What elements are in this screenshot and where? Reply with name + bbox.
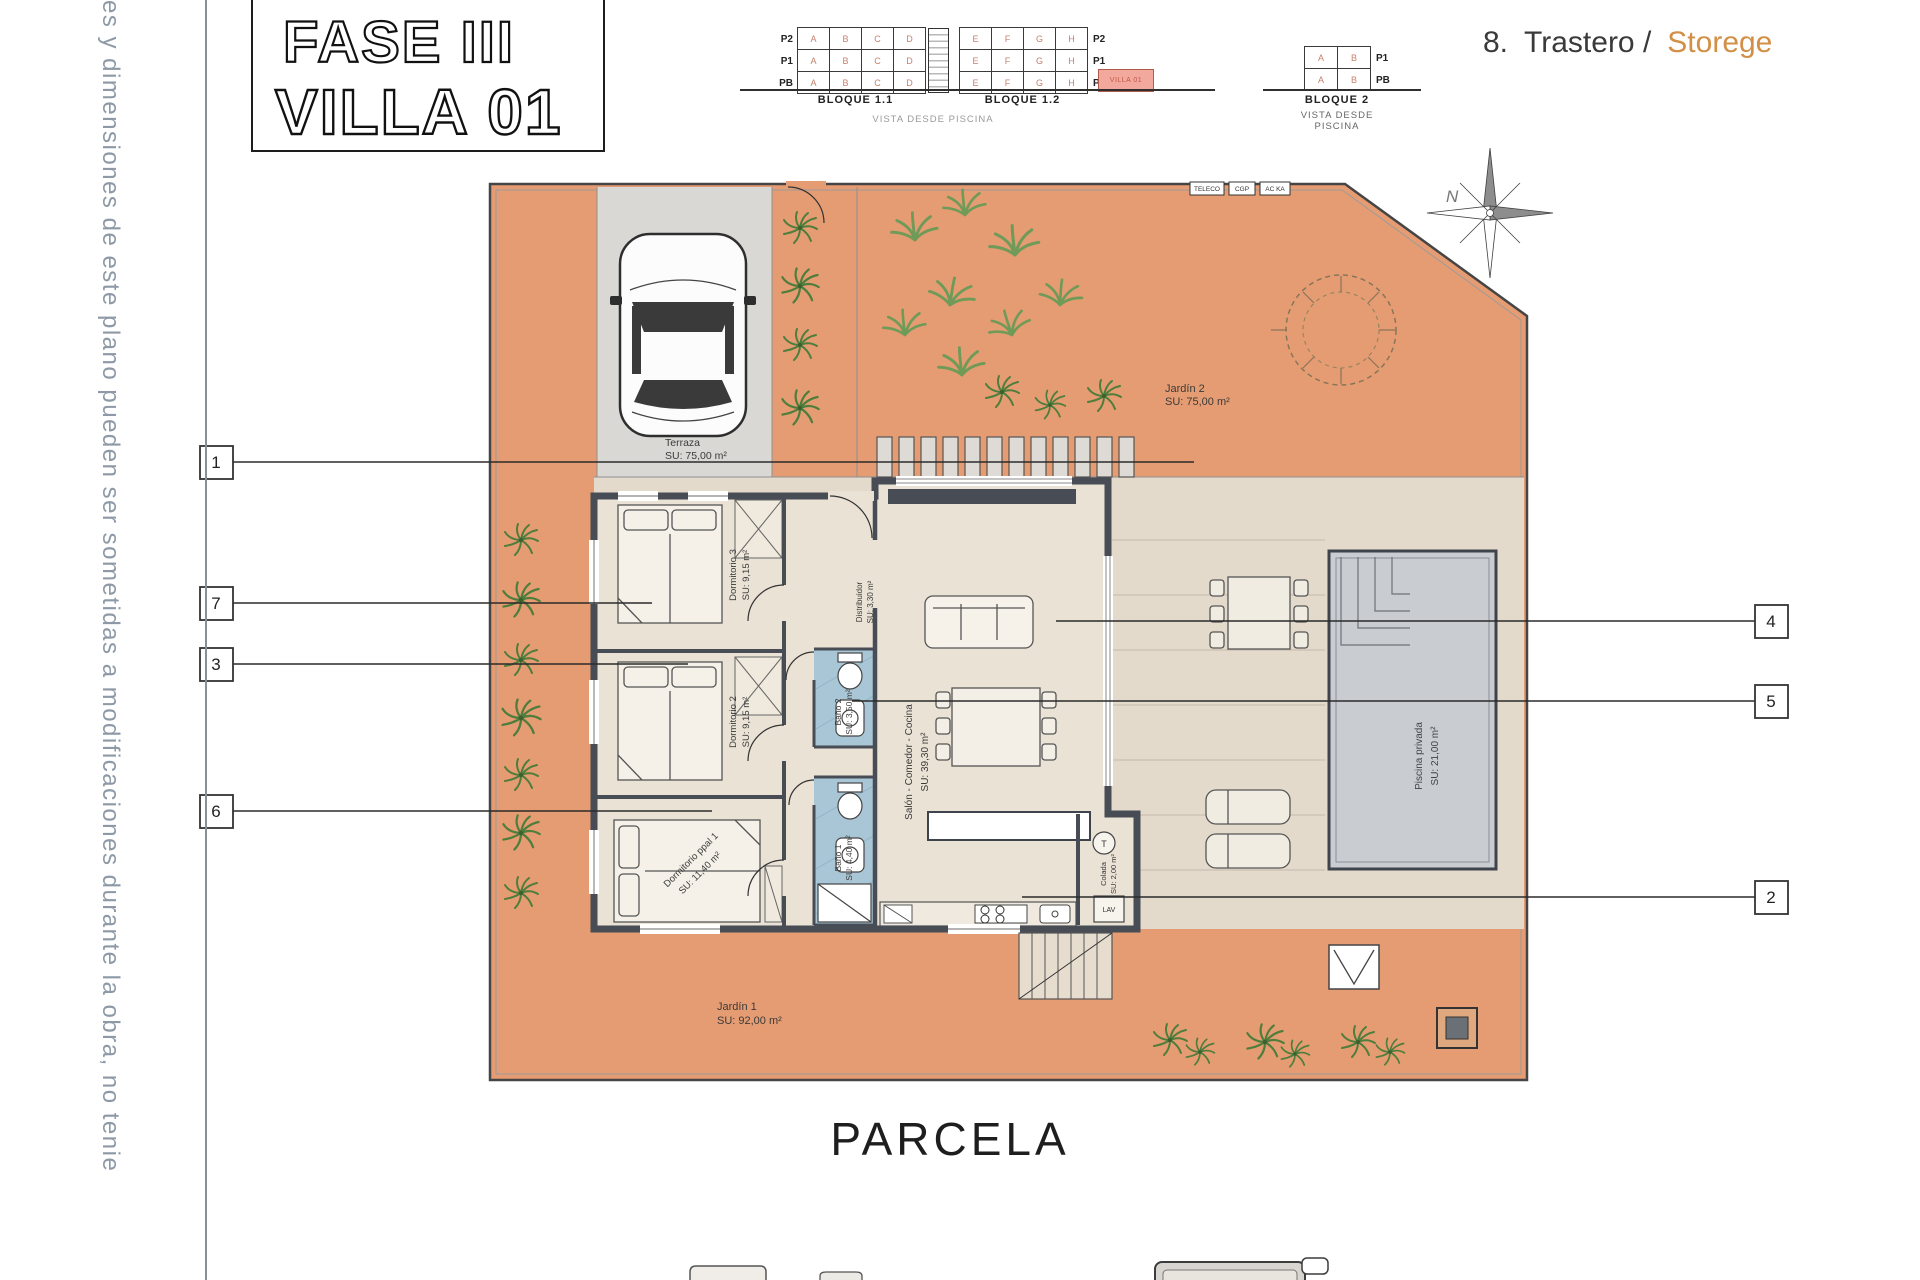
water-heater-label: T [1101, 839, 1107, 849]
colada-area: SU: 2,00 m² [1109, 853, 1118, 894]
callout-2: 2 [1766, 888, 1775, 907]
unit-cell: A [797, 27, 830, 50]
dorm3-label: Dormitorio 3 [728, 549, 739, 601]
floor-row-label: P2 [1088, 28, 1118, 50]
unit-cell: H [1055, 27, 1088, 50]
unit-cell: C [861, 49, 894, 72]
salon-label: Salón - Comedor - Cocina [904, 704, 915, 820]
media-unit [888, 489, 1076, 504]
unit-cell: A [797, 49, 830, 72]
meter-box-label-1: TELECO [1194, 186, 1220, 193]
unit-cell: B [829, 27, 862, 50]
utility-box-garden [1437, 1008, 1477, 1048]
bed-dorm2 [618, 662, 722, 780]
unit-cell: A [1304, 46, 1338, 69]
unit-cell: G [1023, 27, 1056, 50]
colada-label: Colada [1099, 861, 1108, 886]
unit-cell: C [861, 27, 894, 50]
kitchen-counter [880, 902, 1076, 926]
unit-cell: D [893, 27, 926, 50]
parcela-title: PARCELA [830, 1113, 1069, 1165]
dorm2-label: Dormitorio 2 [728, 696, 739, 748]
unit-cell: D [893, 49, 926, 72]
unit-cell: H [1055, 49, 1088, 72]
margin-disclaimer-text: es y dimensiones de este plano pueden se… [94, 0, 124, 1280]
unit-cell: G [1023, 49, 1056, 72]
legend-item-8: 8. Trastero / Storege [1483, 26, 1772, 60]
bano1-label: Baño 1 [833, 844, 843, 871]
phase-title: FASE III [283, 10, 515, 75]
legend-name-es: Trastero / [1524, 26, 1651, 60]
sheet-border-line [205, 0, 207, 1280]
salon-area: SU: 39,30 m² [920, 732, 931, 792]
diagram-baseline-1 [740, 89, 1215, 91]
jardin1-label: Jardín 1 [717, 1001, 757, 1013]
bano1-area: SU: 4,40 m² [844, 835, 854, 881]
legend-name-en: Storege [1667, 26, 1772, 60]
unit-cell: A [1304, 68, 1338, 91]
meter-box-label-2: CGP [1235, 186, 1249, 193]
floor-row-label: PB [1371, 69, 1401, 91]
jardin1-area: SU: 92,00 m² [717, 1015, 782, 1027]
pool-area-label: SU: 21,00 m² [1430, 726, 1441, 786]
unit-cell: E [959, 49, 992, 72]
unit-cell: E [959, 27, 992, 50]
callout-3: 3 [211, 655, 220, 674]
floor-row-label: P1 [1371, 47, 1401, 69]
unit-cell: B [1337, 68, 1371, 91]
title-block: FASE III VILLA 01 [251, 0, 605, 152]
legend-number: 8. [1483, 26, 1508, 60]
bloque-2-label: BLOQUE 2 [1287, 94, 1387, 106]
dining-table [936, 688, 1056, 766]
diagram-baseline-2 [1263, 89, 1421, 91]
unit-cell: B [1337, 46, 1371, 69]
bed-dorm3 [618, 505, 722, 623]
callout-5: 5 [1766, 692, 1775, 711]
callout-4: 4 [1766, 612, 1775, 631]
sofa [925, 596, 1033, 648]
car-top-view [610, 234, 756, 436]
floor-plan: Piscina privada SU: 21,00 m² [0, 0, 1920, 1280]
bloque-1-1-grid: P2ABCDP1ABCDPBABCD [768, 28, 926, 94]
pool: Piscina privada SU: 21,00 m² [1329, 551, 1496, 869]
bano2-area: SU: 3,50 m² [844, 689, 854, 735]
floor-row-label: P1 [768, 50, 798, 72]
callout-1: 1 [211, 453, 220, 472]
unit-cell: B [829, 49, 862, 72]
callout-6: 6 [211, 802, 220, 821]
floor-row-label: P2 [768, 28, 798, 50]
dorm3-area: SU: 9,15 m² [741, 550, 752, 601]
jardin2-area: SU: 75,00 m² [1165, 396, 1230, 408]
stair-core-box [928, 28, 949, 93]
stairs [1019, 933, 1112, 999]
callout-7: 7 [211, 594, 220, 613]
bloque-1-2-label: BLOQUE 1.2 [960, 94, 1085, 106]
unit-cell: F [991, 27, 1024, 50]
jardin2-label: Jardín 2 [1165, 383, 1205, 395]
pool-label: Piscina privada [1414, 722, 1425, 790]
unit-cell: F [991, 49, 1024, 72]
bloque-1-2-grid: EFGHP2EFGHP1EFGHPB [960, 28, 1118, 94]
bloque-1-1-label: BLOQUE 1.1 [793, 94, 918, 106]
distribuidor-area: SU: 3,30 m² [866, 580, 875, 623]
vista-caption-1: VISTA DESDE PISCINA [853, 114, 1013, 125]
house: T LAV [589, 476, 1137, 934]
distribuidor-label: Distribuidor [855, 581, 864, 622]
bloque-2-grid: ABP1ABPB [1305, 47, 1401, 91]
kitchen-island [928, 812, 1090, 840]
terraza-area: SU: 75,00 m² [665, 450, 727, 462]
utility-meter-boxes: TELECO CGP AC KA [1190, 182, 1290, 195]
washing-machine-label: LAV [1103, 907, 1116, 914]
ground-pad [1329, 945, 1379, 989]
vista-caption-2: VISTA DESDE PISCINA [1277, 110, 1397, 132]
meter-box-label-3: AC KA [1265, 186, 1285, 193]
villa-title: VILLA 01 [275, 76, 562, 148]
north-label: N [1446, 187, 1459, 206]
dorm2-area: SU: 9,15 m² [741, 697, 752, 748]
cutoff-drawings [690, 1258, 1328, 1280]
plan-sheet: Piscina privada SU: 21,00 m² [0, 0, 1920, 1280]
terraza-label: Terraza [665, 437, 700, 449]
bano2-label: Baño 2 [833, 698, 843, 725]
